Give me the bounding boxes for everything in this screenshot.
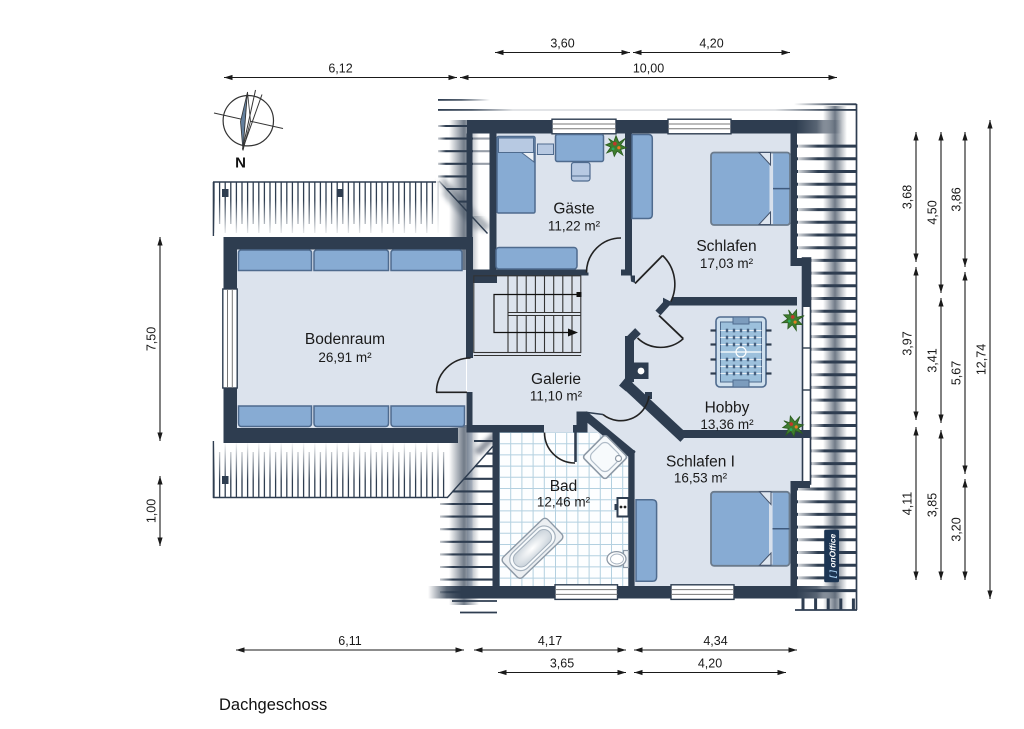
svg-text:26,91 m²: 26,91 m² xyxy=(318,350,372,365)
svg-text:Dachgeschoss: Dachgeschoss xyxy=(219,696,327,714)
svg-text:[ ]onOffice: [ ]onOffice xyxy=(828,533,838,579)
svg-text:4,20: 4,20 xyxy=(698,657,722,671)
svg-text:Gäste: Gäste xyxy=(553,201,594,218)
svg-text:5,67: 5,67 xyxy=(950,361,964,385)
svg-text:6,11: 6,11 xyxy=(338,634,361,648)
svg-text:Bad: Bad xyxy=(550,478,578,495)
svg-text:3,97: 3,97 xyxy=(901,331,915,355)
svg-text:3,41: 3,41 xyxy=(926,348,940,372)
svg-text:Schlafen I: Schlafen I xyxy=(666,454,735,471)
svg-text:16,53 m²: 16,53 m² xyxy=(674,471,728,486)
svg-text:10,00: 10,00 xyxy=(633,62,664,76)
svg-text:4,20: 4,20 xyxy=(699,37,723,51)
svg-text:3,60: 3,60 xyxy=(550,37,574,51)
svg-text:3,20: 3,20 xyxy=(950,517,964,541)
svg-text:4,11: 4,11 xyxy=(901,492,915,515)
svg-text:3,65: 3,65 xyxy=(550,657,574,671)
svg-text:1,00: 1,00 xyxy=(145,499,159,523)
svg-text:11,10 m²: 11,10 m² xyxy=(530,389,583,404)
svg-text:Hobby: Hobby xyxy=(705,400,750,417)
svg-text:12,46 m²: 12,46 m² xyxy=(537,495,591,510)
svg-text:17,03 m²: 17,03 m² xyxy=(700,256,754,271)
svg-text:Galerie: Galerie xyxy=(531,371,581,388)
svg-text:3,86: 3,86 xyxy=(950,187,964,211)
svg-text:7,50: 7,50 xyxy=(145,327,159,351)
svg-text:N: N xyxy=(235,155,246,172)
svg-text:4,17: 4,17 xyxy=(538,634,562,648)
svg-text:13,36 m²: 13,36 m² xyxy=(700,417,754,432)
svg-text:3,68: 3,68 xyxy=(901,185,915,209)
svg-text:Bodenraum: Bodenraum xyxy=(305,331,385,348)
svg-text:4,34: 4,34 xyxy=(703,634,727,648)
svg-text:11,22 m²: 11,22 m² xyxy=(548,219,601,234)
svg-text:12,74: 12,74 xyxy=(975,344,989,375)
svg-text:3,85: 3,85 xyxy=(926,493,940,517)
svg-text:6,12: 6,12 xyxy=(328,62,352,76)
svg-text:4,50: 4,50 xyxy=(926,200,940,224)
svg-text:Schlafen: Schlafen xyxy=(696,238,756,255)
